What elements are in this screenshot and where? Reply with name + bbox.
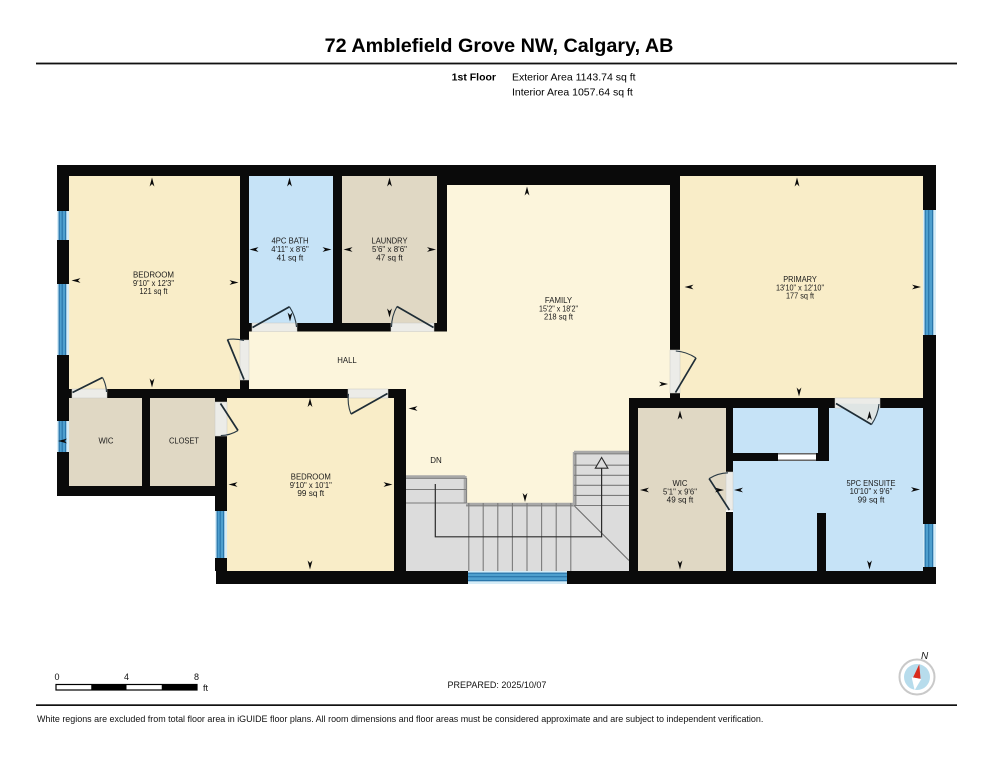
svg-text:DN: DN <box>430 455 442 465</box>
svg-text:PREPARED: 2025/10/07: PREPARED: 2025/10/07 <box>448 680 547 690</box>
svg-text:White regions are excluded fro: White regions are excluded from total fl… <box>37 714 763 724</box>
svg-text:Interior Area 1057.64 sq ft: Interior Area 1057.64 sq ft <box>512 87 633 99</box>
svg-text:72 Amblefield Grove NW, Calgar: 72 Amblefield Grove NW, Calgary, AB <box>325 35 674 57</box>
svg-text:ft: ft <box>203 683 209 693</box>
svg-text:Exterior Area 1143.74 sq ft: Exterior Area 1143.74 sq ft <box>512 72 636 84</box>
svg-text:99 sq ft: 99 sq ft <box>297 489 325 498</box>
svg-text:218 sq ft: 218 sq ft <box>544 313 574 322</box>
svg-text:49 sq ft: 49 sq ft <box>667 496 694 505</box>
svg-text:WIC: WIC <box>99 436 114 446</box>
svg-text:121 sq ft: 121 sq ft <box>140 287 169 296</box>
svg-text:N: N <box>921 651 929 662</box>
svg-text:177 sq ft: 177 sq ft <box>786 292 815 301</box>
svg-text:1st Floor: 1st Floor <box>452 72 496 84</box>
svg-text:41 sq ft: 41 sq ft <box>277 253 304 262</box>
svg-text:8: 8 <box>194 672 199 682</box>
svg-text:4: 4 <box>124 672 129 682</box>
svg-text:CLOSET: CLOSET <box>169 436 199 446</box>
svg-text:0: 0 <box>54 672 59 682</box>
svg-text:HALL: HALL <box>337 355 357 365</box>
svg-text:99 sq ft: 99 sq ft <box>858 495 886 504</box>
svg-text:47 sq ft: 47 sq ft <box>376 253 403 262</box>
